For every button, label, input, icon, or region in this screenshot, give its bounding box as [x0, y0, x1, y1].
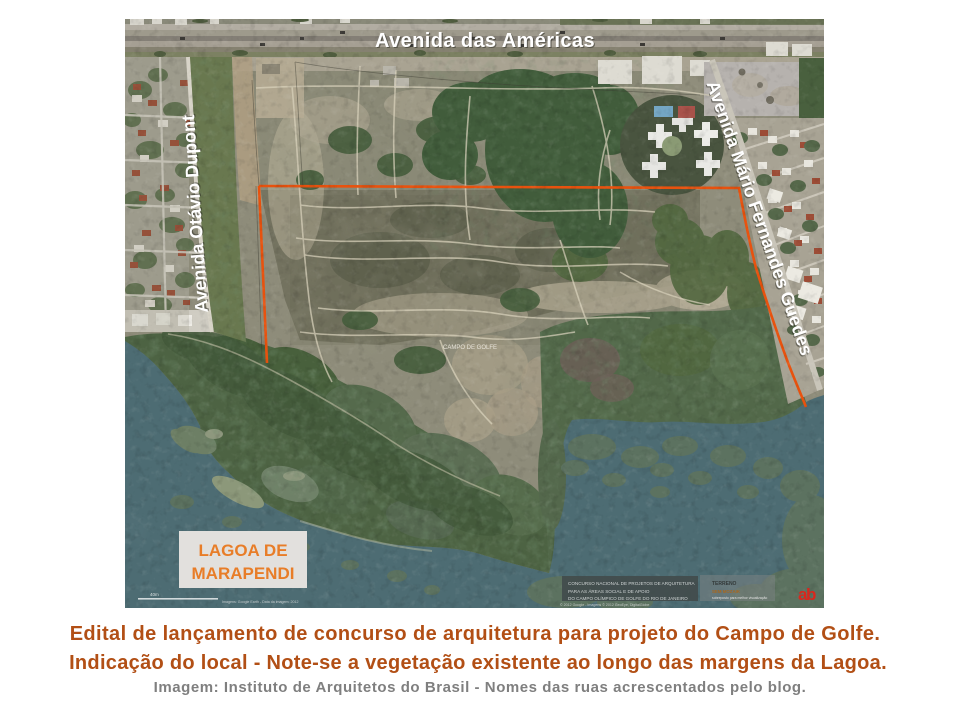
svg-text:LAGOA DE: LAGOA DE — [198, 541, 287, 560]
svg-text:SEM MOZAIK: SEM MOZAIK — [712, 589, 741, 594]
svg-text:TERRENO: TERRENO — [712, 581, 737, 587]
svg-text:DO CAMPO OLÍMPICO DE GOLFE DO: DO CAMPO OLÍMPICO DE GOLFE DO RIO DE JAN… — [568, 595, 688, 601]
svg-text:CONCURSO NACIONAL DE PROJETOS: CONCURSO NACIONAL DE PROJETOS DE ARQUITE… — [568, 581, 696, 586]
svg-text:Imagens: Google Earth - Data d: Imagens: Google Earth - Data da imagem: … — [222, 600, 299, 604]
svg-text:40m: 40m — [150, 592, 159, 597]
svg-text:MARAPENDI: MARAPENDI — [192, 564, 295, 583]
svg-text:CAMPO DE GOLFE: CAMPO DE GOLFE — [443, 345, 497, 351]
svg-text:© 2012 Google - Imagens © 2012: © 2012 Google - Imagens © 2012 GeoEye, D… — [560, 603, 649, 607]
svg-text:Avenida das Américas: Avenida das Américas — [375, 30, 595, 52]
svg-text:PARA AS ÁREAS SOCIAL E DE APOI: PARA AS ÁREAS SOCIAL E DE APOIO — [568, 588, 650, 594]
svg-text:ab: ab — [798, 585, 816, 604]
svg-text:sobreposto para melhor visuali: sobreposto para melhor visualização — [712, 596, 767, 600]
